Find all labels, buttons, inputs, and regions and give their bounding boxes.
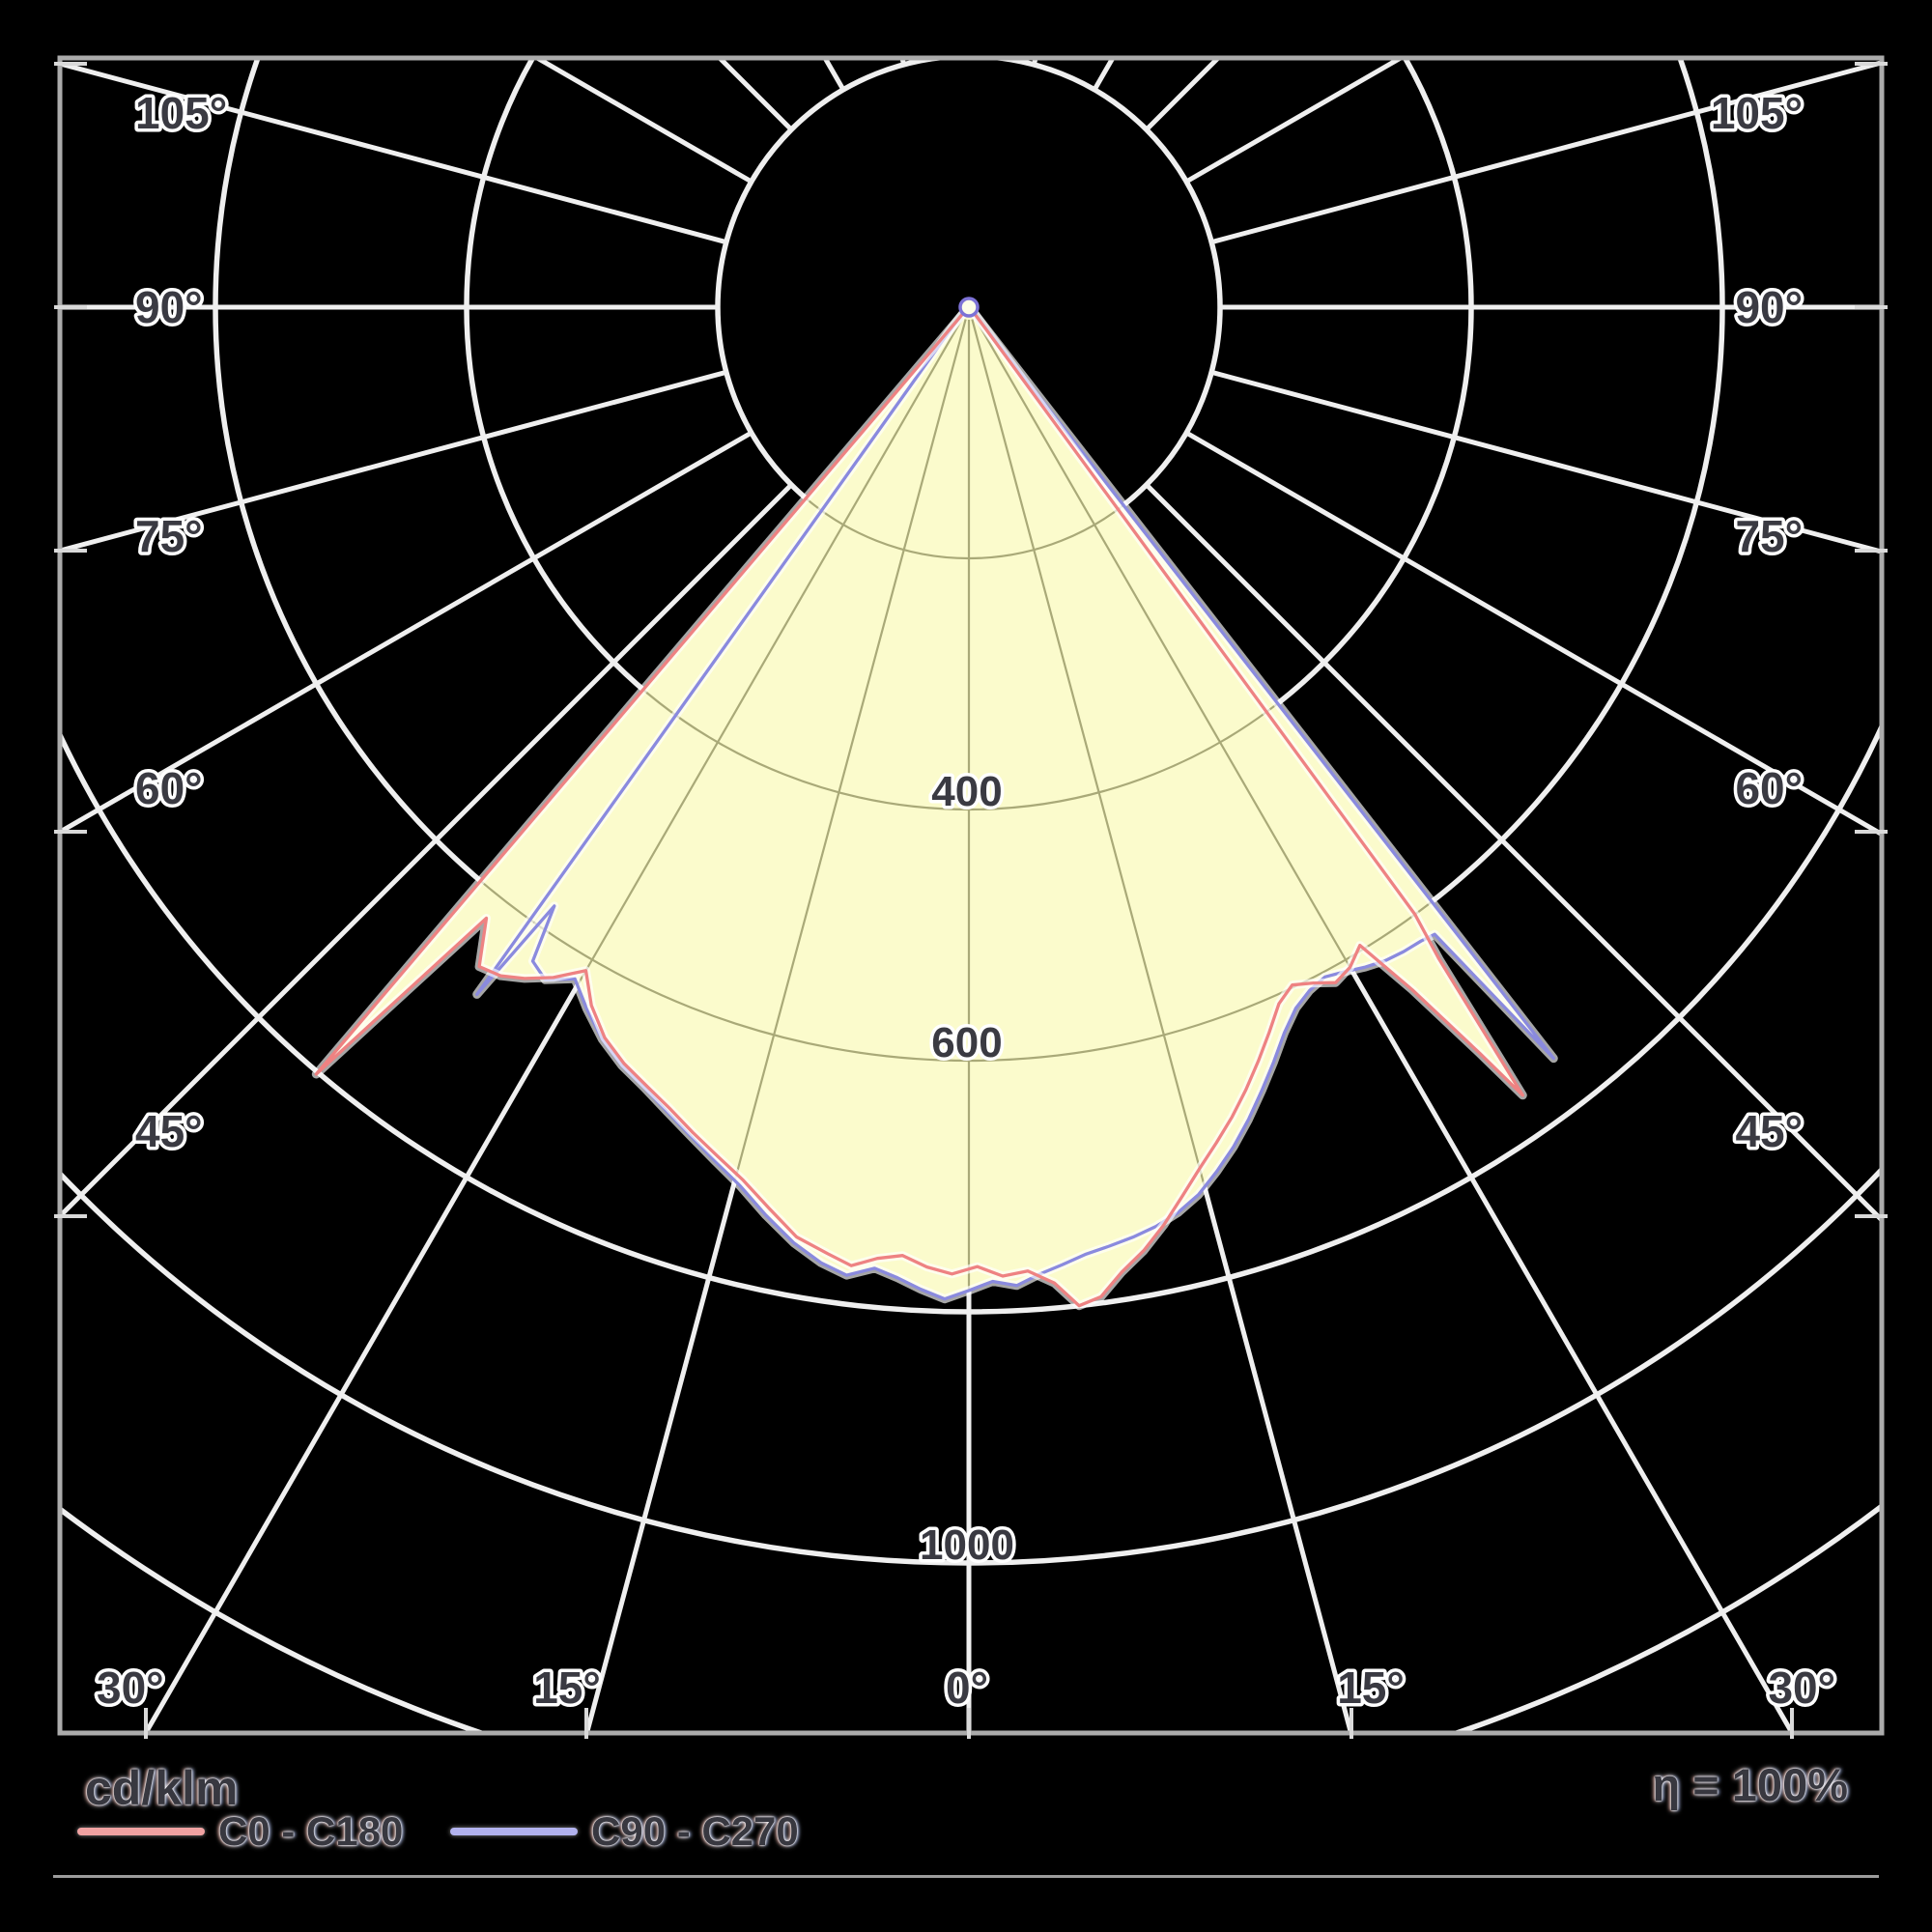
angle-label-right-105: 105° xyxy=(1711,88,1803,138)
polar-diagram: 105°105°90°90°75°75°60°60°45°45°30°15°0°… xyxy=(0,0,1932,1932)
ring-label-600: 600 xyxy=(931,1019,1002,1066)
legend-item-c0-c180: C0 - C180 xyxy=(77,1808,403,1855)
angle-label-left-45: 45° xyxy=(135,1106,203,1156)
origin-marker xyxy=(960,298,978,316)
grid-spoke xyxy=(1147,0,1932,129)
grid-spoke xyxy=(0,0,843,90)
grid-spoke-inner xyxy=(981,0,1932,304)
angle-label-right-60: 60° xyxy=(1735,763,1803,813)
legend-item-c90-c270: C90 - C270 xyxy=(450,1808,799,1855)
legend-line-c90-c270-swatch xyxy=(450,1828,578,1835)
angle-label-right-45: 45° xyxy=(1735,1106,1803,1156)
grid-spoke xyxy=(1186,0,1932,182)
grid-spoke xyxy=(0,0,791,129)
grid-spoke-inner xyxy=(0,0,956,304)
angle-label-left-105: 105° xyxy=(135,88,227,138)
angle-label-left-75: 75° xyxy=(135,511,203,561)
angle-label-right-90: 90° xyxy=(1735,282,1803,332)
grid-spoke-inner xyxy=(976,0,1932,297)
grid-spoke xyxy=(0,0,752,182)
angle-label-left-30: 30° xyxy=(97,1662,164,1713)
legend-label-c0-c180: C0 - C180 xyxy=(218,1808,403,1855)
angle-label-left-60: 60° xyxy=(135,763,203,813)
legend-line-c0-c180-swatch xyxy=(77,1828,205,1835)
angle-label-bottom-right-15: 15° xyxy=(1337,1662,1405,1713)
footer-separator-line xyxy=(53,1875,1879,1878)
grid-spoke-inner xyxy=(980,0,1932,301)
grid-spoke xyxy=(1186,433,1932,1626)
ring-label-400: 400 xyxy=(931,768,1002,815)
ring-label-1000: 1000 xyxy=(920,1521,1014,1569)
grid-spoke-inner xyxy=(0,0,960,298)
angle-label-right-75: 75° xyxy=(1735,511,1803,561)
grid-spoke xyxy=(1094,0,1932,90)
grid-spoke-inner xyxy=(972,0,1651,295)
photometric-diagram-page: 105°105°90°90°75°75°60°60°45°45°30°15°0°… xyxy=(0,0,1932,1932)
angle-label-left-90: 90° xyxy=(135,282,203,332)
grid-spoke-inner xyxy=(0,0,963,297)
angle-label-bottom-0: 0° xyxy=(946,1662,988,1713)
legend-label-c90-c270: C90 - C270 xyxy=(591,1808,799,1855)
grid-spoke xyxy=(1034,0,1651,65)
angle-label-right-30: 30° xyxy=(1768,1662,1835,1713)
grid-spoke-inner xyxy=(0,0,958,301)
grid-spoke-inner xyxy=(286,0,965,295)
grid-spoke xyxy=(286,0,903,65)
grid-spoke-inner xyxy=(978,0,1932,298)
angle-label-bottom-left-15: 15° xyxy=(533,1662,601,1713)
grid-spoke xyxy=(1211,0,1932,242)
efficiency-label: η = 100% xyxy=(1653,1758,1848,1811)
grid-spoke xyxy=(0,0,726,242)
